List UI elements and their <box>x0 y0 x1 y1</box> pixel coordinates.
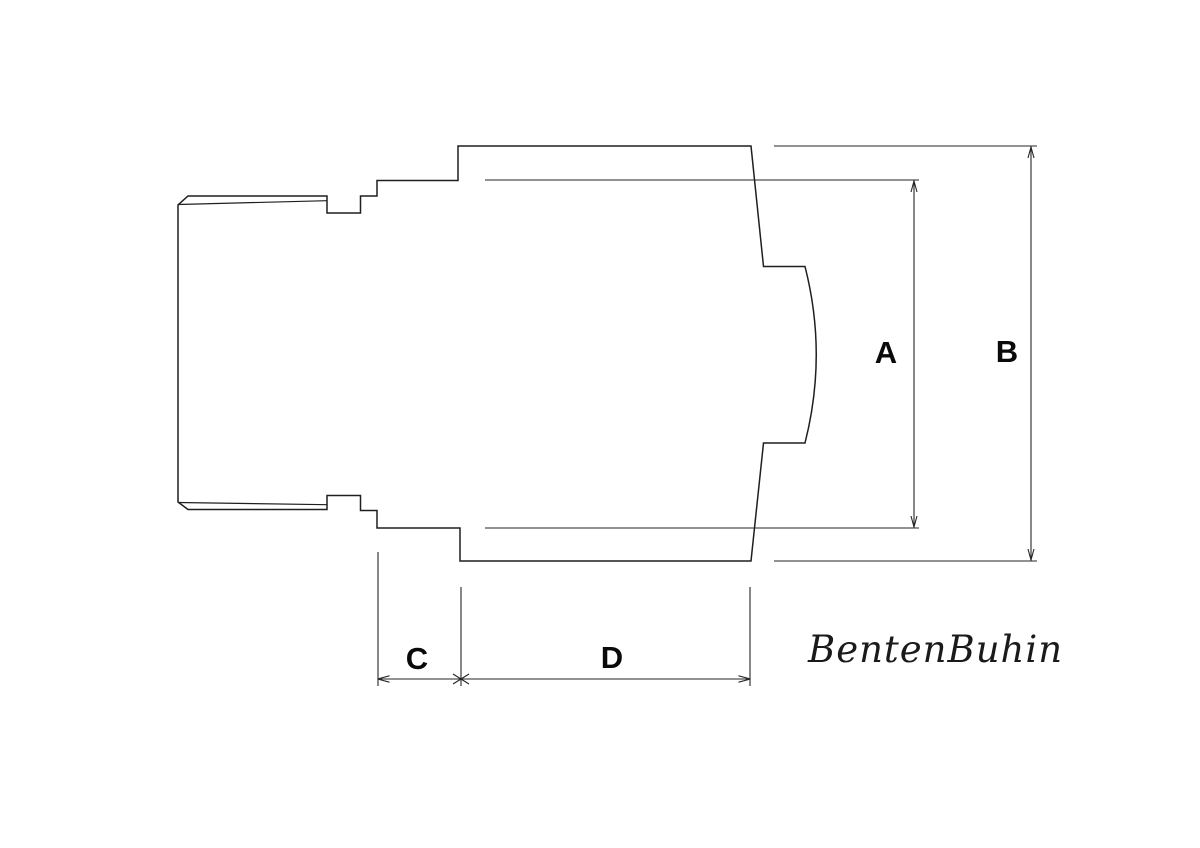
dimension-c-label: C <box>406 641 428 676</box>
dimension-d-label: D <box>601 640 623 675</box>
dimension-a-extension-lines <box>485 180 919 528</box>
dimension-d: D <box>453 587 751 686</box>
chamfer-edge-line-top <box>178 201 327 205</box>
drawing-canvas: A B C D BentenBuhin <box>0 0 1200 848</box>
dimension-c: C <box>378 552 462 686</box>
part-outline <box>178 146 816 561</box>
part-drawing-svg: A B C D BentenBuhin <box>0 0 1200 848</box>
dimension-a: A <box>485 180 919 528</box>
signature-text: BentenBuhin <box>807 628 1063 671</box>
dimension-b: B <box>774 146 1037 561</box>
part-profile-path <box>178 146 816 561</box>
chamfer-edge-line-bottom <box>178 503 327 505</box>
dimension-a-label: A <box>875 335 897 370</box>
dimension-b-label: B <box>996 334 1018 369</box>
